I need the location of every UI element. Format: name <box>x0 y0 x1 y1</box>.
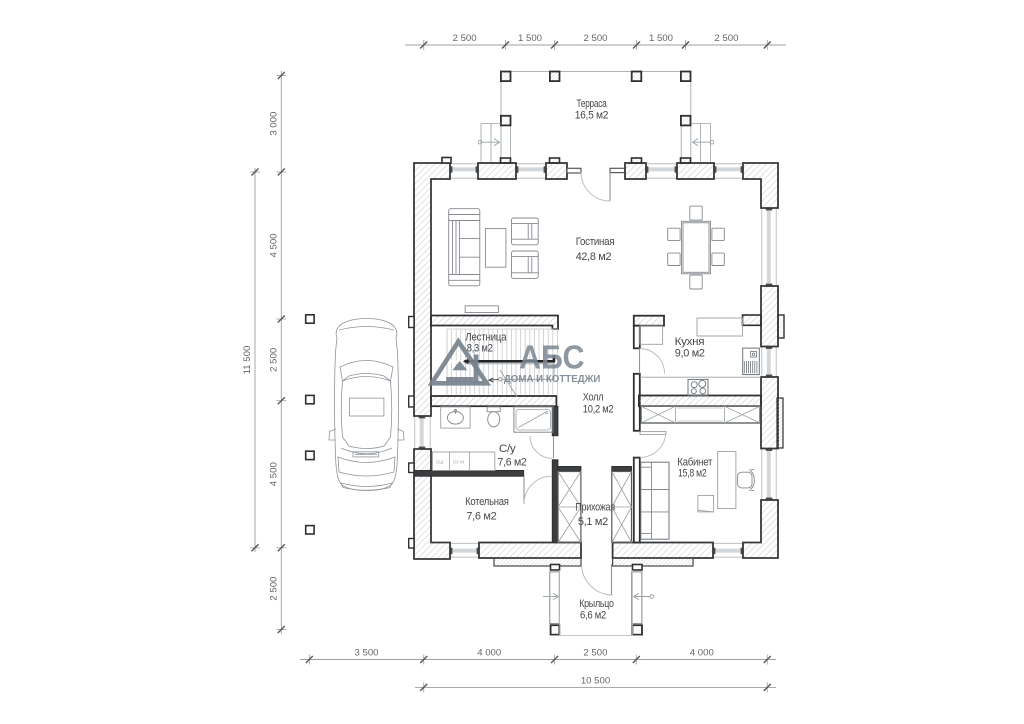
svg-text:СШ: СШ <box>436 460 443 465</box>
svg-text:15,8 м2: 15,8 м2 <box>678 468 707 480</box>
svg-text:ДОМА И КОТТЕДЖИ: ДОМА И КОТТЕДЖИ <box>504 374 601 385</box>
svg-text:4 000: 4 000 <box>690 648 714 659</box>
svg-text:Холл: Холл <box>583 392 604 404</box>
svg-text:Терраса: Терраса <box>577 98 608 110</box>
svg-text:7,6 м2: 7,6 м2 <box>498 457 527 469</box>
svg-text:2 500: 2 500 <box>583 648 607 659</box>
svg-text:С/у: С/у <box>499 443 516 455</box>
svg-text:42,8 м2: 42,8 м2 <box>576 251 612 263</box>
svg-text:4 500: 4 500 <box>268 462 279 486</box>
svg-text:2 500: 2 500 <box>583 33 607 44</box>
svg-text:1 500: 1 500 <box>518 33 542 44</box>
svg-text:Гостиная: Гостиная <box>576 236 615 248</box>
svg-text:2 500: 2 500 <box>714 33 738 44</box>
svg-text:4 500: 4 500 <box>268 233 279 257</box>
svg-text:6,6 м2: 6,6 м2 <box>580 610 606 622</box>
svg-text:2 500: 2 500 <box>453 33 477 44</box>
svg-text:СУ М: СУ М <box>453 460 464 465</box>
svg-text:Прихожая: Прихожая <box>575 502 615 514</box>
svg-text:3 000: 3 000 <box>268 112 279 136</box>
svg-text:1 500: 1 500 <box>649 33 673 44</box>
svg-text:АБС: АБС <box>519 340 585 377</box>
svg-text:16,5 м2: 16,5 м2 <box>575 110 609 122</box>
svg-text:Кухня: Кухня <box>675 336 705 348</box>
svg-text:Котельная: Котельная <box>465 496 509 508</box>
svg-text:4 000: 4 000 <box>477 648 501 659</box>
svg-text:10,2 м2: 10,2 м2 <box>583 404 614 416</box>
svg-text:8,3 м2: 8,3 м2 <box>467 343 493 355</box>
svg-text:Крыльцо: Крыльцо <box>579 598 614 610</box>
svg-text:5,1 м2: 5,1 м2 <box>578 516 608 528</box>
svg-text:10 500: 10 500 <box>581 676 610 687</box>
svg-text:2 500: 2 500 <box>268 577 279 601</box>
svg-text:11 500: 11 500 <box>242 346 253 375</box>
svg-text:2 500: 2 500 <box>268 348 279 372</box>
svg-text:7,6 м2: 7,6 м2 <box>466 511 496 523</box>
svg-text:3 500: 3 500 <box>354 648 378 659</box>
svg-text:9,0 м2: 9,0 м2 <box>675 348 705 360</box>
